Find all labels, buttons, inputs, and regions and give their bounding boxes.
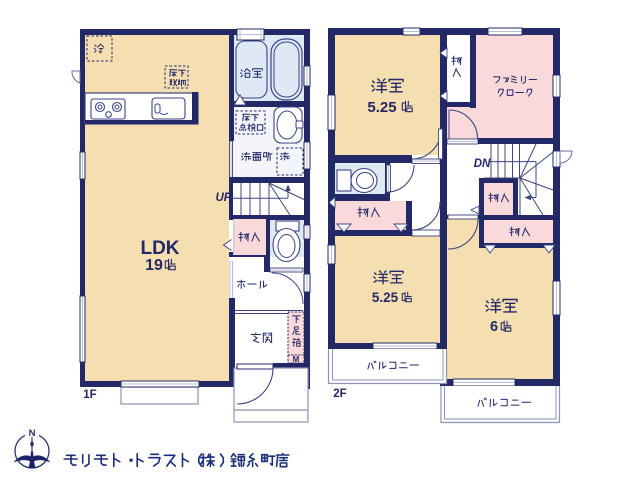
svg-text:DN: DN bbox=[474, 158, 491, 170]
svg-text:1F: 1F bbox=[83, 389, 96, 401]
svg-text:5.25: 5.25 bbox=[367, 99, 396, 116]
svg-text:LDK: LDK bbox=[140, 238, 179, 259]
svg-text:19: 19 bbox=[145, 257, 163, 274]
svg-text:UP: UP bbox=[216, 192, 232, 204]
svg-text:5.25: 5.25 bbox=[372, 290, 399, 305]
svg-text:2F: 2F bbox=[333, 388, 346, 400]
svg-text:6: 6 bbox=[490, 319, 498, 335]
svg-text:M: M bbox=[293, 355, 300, 364]
